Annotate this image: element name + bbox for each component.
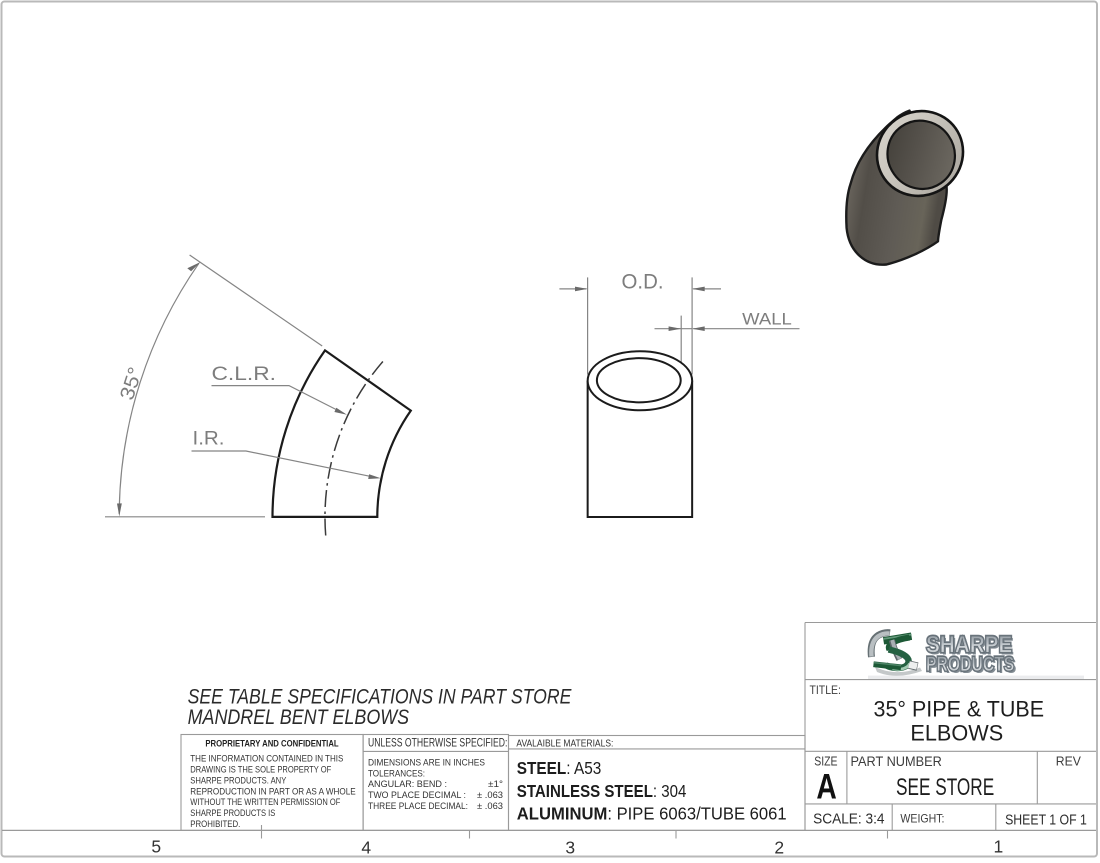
svg-text:UNLESS OTHERWISE SPECIFIED:: UNLESS OTHERWISE SPECIFIED: bbox=[368, 738, 507, 750]
svg-text:C.L.R.: C.L.R. bbox=[212, 363, 277, 385]
svg-text:SHARPE PRODUCTS. ANY: SHARPE PRODUCTS. ANY bbox=[190, 775, 286, 786]
svg-text:1: 1 bbox=[994, 837, 1004, 857]
svg-text:PRODUCTS: PRODUCTS bbox=[926, 653, 1014, 676]
svg-text:3: 3 bbox=[565, 838, 575, 858]
svg-text:DRAWING IS THE SOLE PROPERTY O: DRAWING IS THE SOLE PROPERTY OF bbox=[190, 765, 331, 776]
svg-text:REV: REV bbox=[1056, 755, 1082, 769]
svg-text:STEEL: A53: STEEL: A53 bbox=[517, 758, 602, 778]
svg-text:PART NUMBER: PART NUMBER bbox=[851, 753, 942, 769]
svg-text:ALUMINUM: PIPE 6063/TUBE 6061: ALUMINUM: PIPE 6063/TUBE 6061 bbox=[517, 804, 787, 824]
svg-text:AVALAIBLE MATERIALS:: AVALAIBLE MATERIALS: bbox=[516, 739, 613, 750]
svg-text:TITLE:: TITLE: bbox=[810, 685, 841, 697]
svg-text:STAINLESS STEEL: 304: STAINLESS STEEL: 304 bbox=[517, 781, 687, 801]
svg-text:A: A bbox=[816, 766, 836, 806]
svg-text:REPRODUCTION IN PART OR AS A W: REPRODUCTION IN PART OR AS A WHOLE bbox=[190, 786, 355, 797]
svg-text:I.R.: I.R. bbox=[193, 428, 225, 450]
svg-text:SHEET 1 OF 1: SHEET 1 OF 1 bbox=[1005, 811, 1087, 828]
svg-text:THREE PLACE DECIMAL:: THREE PLACE DECIMAL: bbox=[368, 801, 468, 812]
svg-text:TOLERANCES:: TOLERANCES: bbox=[368, 768, 425, 779]
svg-text:2: 2 bbox=[774, 838, 784, 858]
svg-text:SEE STORE: SEE STORE bbox=[896, 774, 994, 801]
svg-text:TWO PLACE DECIMAL :: TWO PLACE DECIMAL : bbox=[368, 790, 466, 801]
svg-text:±1°: ±1° bbox=[488, 779, 503, 790]
svg-text:WEIGHT:: WEIGHT: bbox=[900, 812, 944, 826]
svg-text:ELBOWS: ELBOWS bbox=[910, 720, 1003, 745]
svg-text:PROHIBITED.: PROHIBITED. bbox=[190, 819, 240, 830]
svg-text:5: 5 bbox=[151, 837, 161, 857]
svg-text:MANDREL BENT ELBOWS: MANDREL BENT ELBOWS bbox=[188, 706, 410, 729]
svg-text:4: 4 bbox=[361, 838, 371, 858]
svg-text:PROPRIETARY AND CONFIDENTIAL: PROPRIETARY AND CONFIDENTIAL bbox=[205, 739, 339, 749]
svg-text:THE INFORMATION CONTAINED IN T: THE INFORMATION CONTAINED IN THIS bbox=[190, 754, 343, 765]
svg-text:O.D.: O.D. bbox=[622, 270, 664, 293]
svg-text:± .063: ± .063 bbox=[477, 790, 503, 801]
svg-text:SHARPE PRODUCTS IS: SHARPE PRODUCTS IS bbox=[190, 808, 275, 819]
svg-text:DIMENSIONS ARE IN INCHES: DIMENSIONS ARE IN INCHES bbox=[368, 758, 485, 769]
svg-text:SCALE: 3:4: SCALE: 3:4 bbox=[813, 811, 884, 827]
svg-text:± .063: ± .063 bbox=[477, 801, 503, 812]
svg-text:35° PIPE & TUBE: 35° PIPE & TUBE bbox=[874, 697, 1045, 722]
svg-text:WALL: WALL bbox=[742, 310, 792, 328]
svg-text:WITHOUT THE WRITTEN PERMISSION: WITHOUT THE WRITTEN PERMISSION OF bbox=[190, 797, 340, 808]
svg-text:ANGULAR: BEND :: ANGULAR: BEND : bbox=[368, 779, 447, 790]
